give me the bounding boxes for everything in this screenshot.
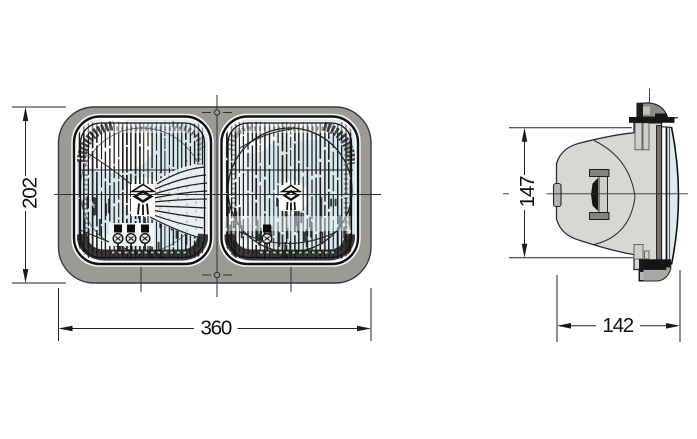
- svg-text:147: 147: [516, 176, 539, 207]
- svg-text:142: 142: [602, 314, 633, 337]
- svg-text:360: 360: [200, 317, 231, 340]
- svg-text:202: 202: [19, 177, 42, 208]
